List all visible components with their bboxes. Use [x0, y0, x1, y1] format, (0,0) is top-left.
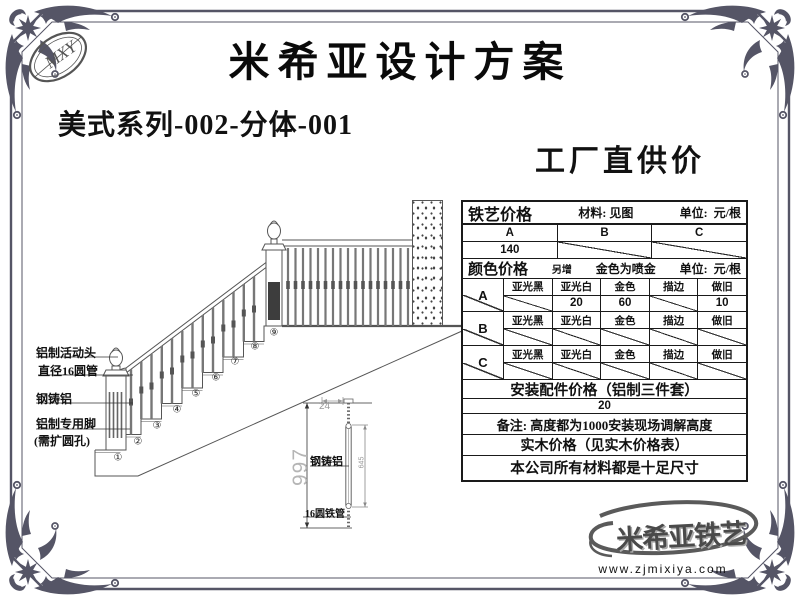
step-number-7: ⑦: [231, 357, 240, 368]
step-number-4: ④: [173, 405, 182, 416]
wall-column: [412, 200, 443, 326]
detail-label-iron-tube: 16圆铁管: [305, 505, 345, 520]
label-cast-aluminum: 钢铸铝: [36, 390, 72, 407]
col-gold: 金色: [601, 346, 650, 362]
c-outline-price: [650, 363, 699, 379]
col-antique: 做旧: [698, 279, 746, 295]
color-price-header-row: 颜色价格 另增 金色为喷金 单位: 元/根: [463, 259, 746, 279]
a-outline-price: [650, 296, 699, 312]
col-antique: 做旧: [698, 346, 746, 362]
material-guarantee-row: 本公司所有材料都是十足尺寸: [463, 456, 746, 478]
accessory-price-value-row: 20: [463, 399, 746, 414]
type-price-row: 140: [463, 242, 746, 259]
color-row-b: B 亚光黑 亚光白 金色 描边 做旧: [463, 312, 746, 346]
col-gold: 金色: [601, 279, 650, 295]
b-antique-price: [698, 329, 746, 345]
detail-top-dimension: 24: [319, 401, 330, 412]
website-url: www.zjmixiya.com: [588, 562, 738, 576]
c-antique-price: [698, 363, 746, 379]
step-number-2: ②: [134, 437, 143, 448]
color-row-c: C 亚光黑 亚光白 金色 描边 做旧: [463, 346, 746, 380]
b-matte-white-price: [553, 329, 602, 345]
step-number-8: ⑧: [251, 342, 260, 353]
row-c-label: C: [463, 346, 504, 379]
iron-price-title: 铁艺价格: [468, 201, 532, 225]
color-surcharge-note: 另增: [552, 261, 572, 276]
row-b-label: B: [463, 312, 504, 345]
row-b-values: [504, 329, 746, 345]
col-matte-white: 亚光白: [553, 279, 602, 295]
type-b-header: B: [558, 225, 653, 241]
remark-row: 备注: 高度都为1000安装现场调解高度: [463, 414, 746, 435]
row-c-values: [504, 363, 746, 379]
step-number-5: ⑤: [192, 389, 201, 400]
label-aluminum-head: 铝制活动头: [36, 344, 96, 361]
accessory-price-row: 安装配件价格（铝制三件套）: [463, 380, 746, 399]
col-matte-black: 亚光黑: [504, 312, 553, 328]
factory-price-heading: 工厂直供价: [505, 136, 735, 180]
series-subtitle: 美式系列-002-分体-001: [58, 103, 353, 143]
col-outline: 描边: [650, 279, 699, 295]
col-matte-white: 亚光白: [553, 346, 602, 362]
color-unit: 单位: 元/根: [680, 260, 741, 277]
wood-price-row: 实木价格（见实木价格表）: [463, 435, 746, 456]
c-matte-white-price: [553, 363, 602, 379]
row-a-color-headers: 亚光黑 亚光白 金色 描边 做旧: [504, 279, 746, 296]
col-outline: 描边: [650, 346, 699, 362]
c-matte-black-price: [504, 363, 553, 379]
col-antique: 做旧: [698, 312, 746, 328]
row-c-color-headers: 亚光黑 亚光白 金色 描边 做旧: [504, 346, 746, 363]
step-number-9: ⑨: [270, 328, 279, 339]
a-matte-black-price: [504, 296, 553, 312]
step-number-3: ③: [153, 421, 162, 432]
step-number-1: ①: [114, 453, 123, 464]
a-matte-white-price: 20: [553, 296, 602, 312]
row-a-values: 20 60 10: [504, 296, 746, 312]
col-matte-black: 亚光黑: [504, 279, 553, 295]
type-a-price: 140: [463, 242, 558, 258]
iron-price-header-row: 铁艺价格 材料: 见图 单位: 元/根: [463, 202, 746, 225]
page-title: 米希亚设计方案: [0, 28, 800, 88]
b-gold-price: [601, 329, 650, 345]
col-matte-black: 亚光黑: [504, 346, 553, 362]
a-gold-price: 60: [601, 296, 650, 312]
detail-label-cast-aluminum: 钢铸铝: [310, 453, 343, 469]
price-table: 铁艺价格 材料: 见图 单位: 元/根 A B C 140 颜色价格 另增 金色…: [461, 200, 748, 482]
b-matte-black-price: [504, 329, 553, 345]
iron-unit: 单位: 元/根: [680, 204, 741, 221]
row-b-color-headers: 亚光黑 亚光白 金色 描边 做旧: [504, 312, 746, 329]
type-c-price: [652, 242, 746, 258]
type-c-header: C: [652, 225, 746, 241]
col-gold: 金色: [601, 312, 650, 328]
label-hole-note: (需扩圆孔): [34, 432, 90, 449]
c-gold-price: [601, 363, 650, 379]
type-b-price: [558, 242, 653, 258]
a-antique-price: 10: [698, 296, 746, 312]
col-outline: 描边: [650, 312, 699, 328]
b-outline-price: [650, 329, 699, 345]
design-sheet: { "header": { "title": "米希亚设计方案", "logo_…: [0, 0, 800, 600]
color-row-a: A 亚光黑 亚光白 金色 描边 做旧 20 60 10: [463, 279, 746, 312]
row-a-label: A: [463, 279, 504, 311]
type-a-header: A: [463, 225, 558, 241]
step-number-6: ⑥: [212, 373, 221, 384]
detail-mid-dimension: 645: [359, 449, 366, 477]
gold-note: 金色为喷金: [596, 260, 656, 277]
color-price-title: 颜色价格: [468, 258, 528, 279]
label-special-foot: 铝制专用脚: [36, 415, 96, 432]
label-dia16-tube: 直径16圆管: [38, 362, 98, 379]
iron-material: 材料: 见图: [578, 204, 633, 221]
type-header-row: A B C: [463, 225, 746, 242]
staircase-drawing: [36, 221, 462, 476]
col-matte-white: 亚光白: [553, 312, 602, 328]
footer-logo-text: 米希亚铁艺: [599, 511, 763, 558]
